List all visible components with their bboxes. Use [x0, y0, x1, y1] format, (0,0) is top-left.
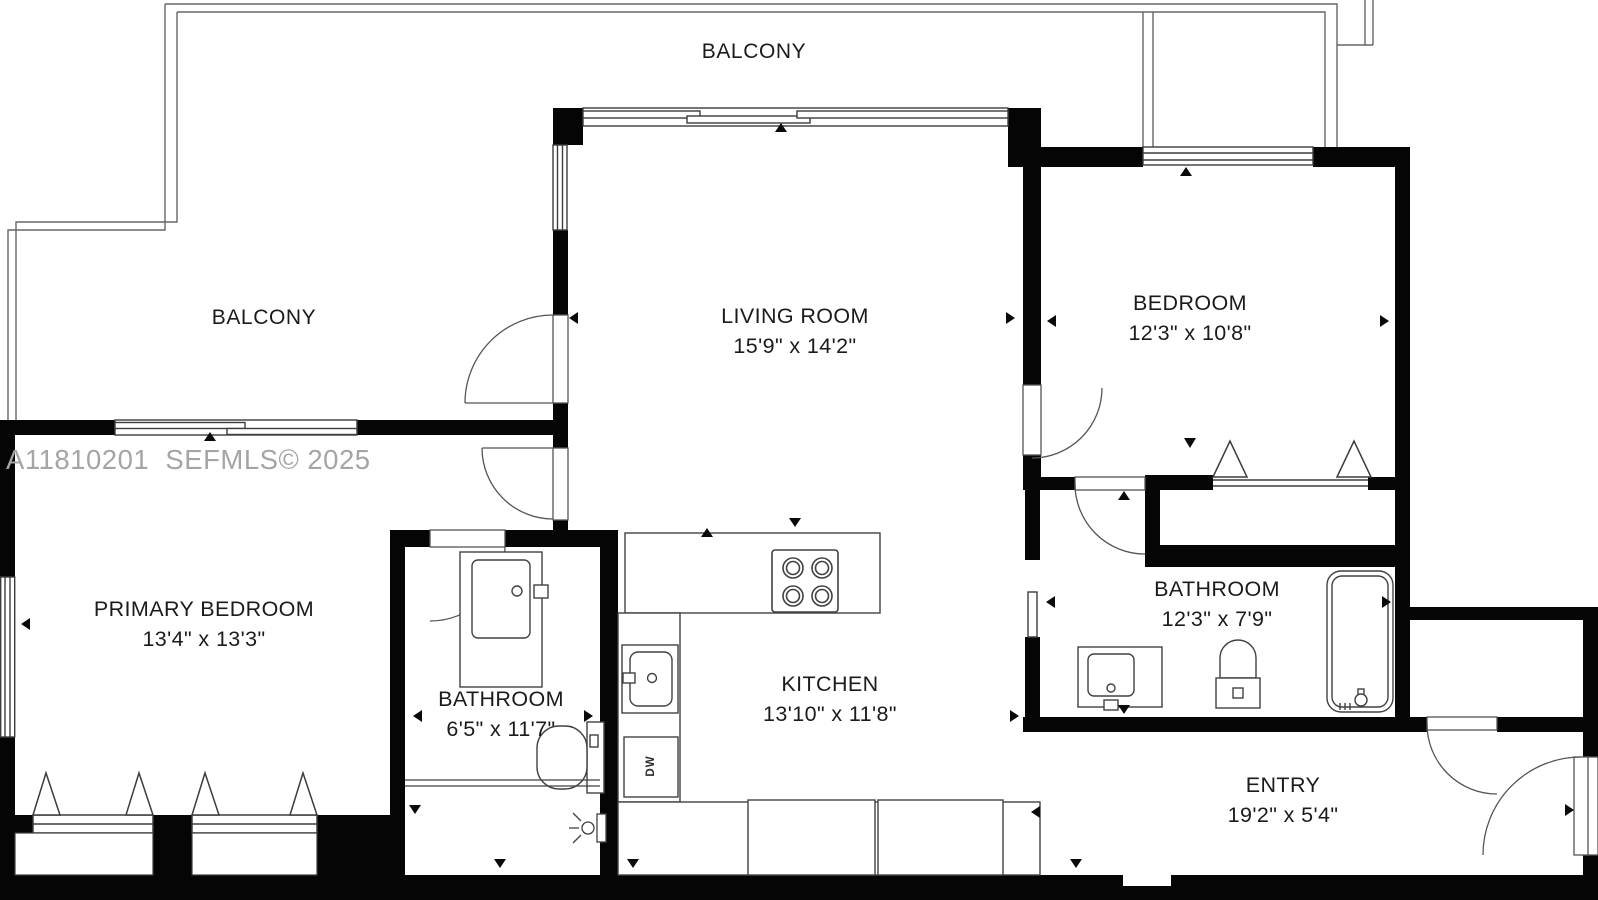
room-size: 6'5" x 11'7" [438, 714, 564, 744]
balcony-door [465, 315, 568, 403]
kitchen-sink-icon [622, 645, 678, 713]
room-name: PRIMARY BEDROOM [94, 594, 314, 624]
room-label-living-room: LIVING ROOM 15'9" x 14'2" [721, 301, 869, 361]
balcony-railing [8, 0, 1373, 422]
room-size: 13'10" x 11'8" [763, 699, 897, 729]
room-label-bedroom: BEDROOM 12'3" x 10'8" [1128, 288, 1251, 348]
room-name: BATHROOM [438, 684, 564, 714]
room-size: 15'9" x 14'2" [721, 331, 869, 361]
room-name: ENTRY [1228, 770, 1339, 800]
shower [405, 780, 606, 843]
room-label-entry: ENTRY 19'2" x 5'4" [1228, 770, 1339, 830]
room-size: 13'4" x 13'3" [94, 624, 314, 654]
bathroom-vanity-sink-icon [1078, 647, 1162, 710]
entry-closet-door [1427, 717, 1497, 794]
room-size: 12'3" x 7'9" [1154, 604, 1280, 634]
primary-bedroom-door [482, 448, 568, 520]
room-label-hall-bathroom: BATHROOM 12'3" x 7'9" [1154, 574, 1280, 634]
bathroom-vanity-sink-icon [460, 552, 548, 687]
room-name: BEDROOM [1128, 288, 1251, 318]
dishwasher-label: DW [645, 755, 657, 776]
toilet-icon [1216, 640, 1260, 708]
room-name: KITCHEN [763, 669, 897, 699]
room-size: 19'2" x 5'4" [1228, 800, 1339, 830]
room-label-kitchen: KITCHEN 13'10" x 11'8" [763, 669, 897, 729]
hall-bathroom-door [1075, 477, 1145, 554]
room-label-balcony-top: BALCONY [702, 40, 807, 64]
room-name: BALCONY [702, 40, 807, 63]
dimension-arrow [21, 123, 1574, 868]
front-entry-door [1483, 757, 1598, 855]
mls-watermark: A11810201 SEFMLS© 2025 [6, 444, 371, 476]
room-label-primary-bathroom: BATHROOM 6'5" x 11'7" [438, 684, 564, 744]
room-label-balcony-left: BALCONY [212, 306, 317, 330]
floor-plan-image: BALCONY BALCONY LIVING ROOM 15'9" x 14'2… [0, 0, 1598, 900]
room-name: LIVING ROOM [721, 301, 869, 331]
room-name: BALCONY [212, 306, 317, 329]
wall [0, 108, 1598, 900]
bathtub-icon [1327, 571, 1393, 712]
room-label-primary-bedroom: PRIMARY BEDROOM 13'4" x 13'3" [94, 594, 314, 654]
room-name: BATHROOM [1154, 574, 1280, 604]
stove-icon [772, 550, 838, 612]
bedroom-door [1023, 385, 1102, 458]
room-size: 12'3" x 10'8" [1128, 318, 1251, 348]
bottom-wall-notch [1123, 875, 1171, 886]
